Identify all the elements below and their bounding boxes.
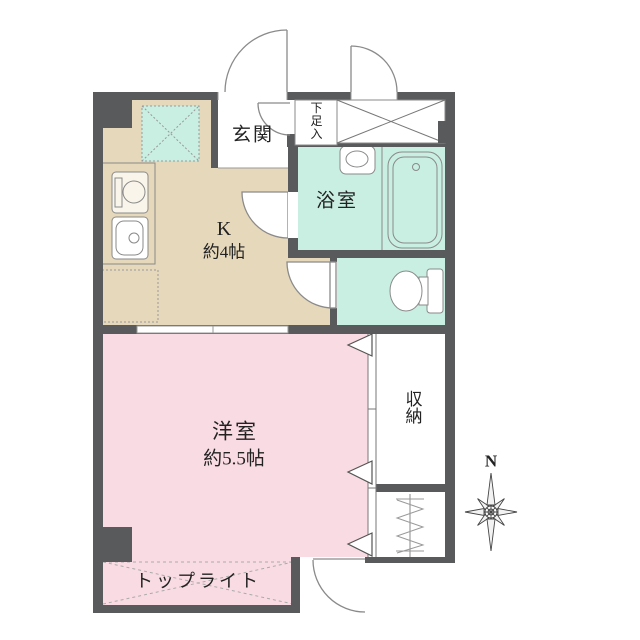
toilet-bowl xyxy=(390,271,422,311)
entrance-door xyxy=(225,30,287,92)
room-floors xyxy=(103,100,445,605)
wall-notch xyxy=(438,121,455,143)
balcony-door xyxy=(300,557,365,612)
label-bathroom: 浴室 xyxy=(316,192,358,211)
kitchen-hatch-area xyxy=(142,106,199,161)
bathroom-door-opening xyxy=(288,192,298,238)
label-western-room-size: 約5.5帖 xyxy=(203,450,265,469)
label-western-room: 洋室 xyxy=(212,422,258,443)
toilet-tank xyxy=(427,269,443,313)
label-top-light: トップライト xyxy=(135,572,261,590)
service-door xyxy=(351,46,397,92)
western-room-floor xyxy=(103,334,368,605)
compass-rose xyxy=(465,473,517,551)
label-kitchen: K xyxy=(217,219,231,239)
label-compass-north: N xyxy=(485,453,497,470)
floor-plan-drawing xyxy=(0,0,640,640)
floor-plan: 玄関 下足入 浴室 K 約4帖 洋室 約5.5帖 収納 トップライト N xyxy=(0,0,640,640)
shoe-cabinet-opening xyxy=(288,100,295,134)
label-kitchen-size: 約4帖 xyxy=(203,244,246,261)
sliding-door-kitchen-room xyxy=(137,326,288,333)
label-storage: 収納 xyxy=(404,390,421,424)
storage-floor xyxy=(368,334,445,557)
label-entrance: 玄関 xyxy=(232,126,274,145)
wash-basin xyxy=(340,146,375,174)
label-shoe-cabinet: 下足入 xyxy=(310,102,322,141)
